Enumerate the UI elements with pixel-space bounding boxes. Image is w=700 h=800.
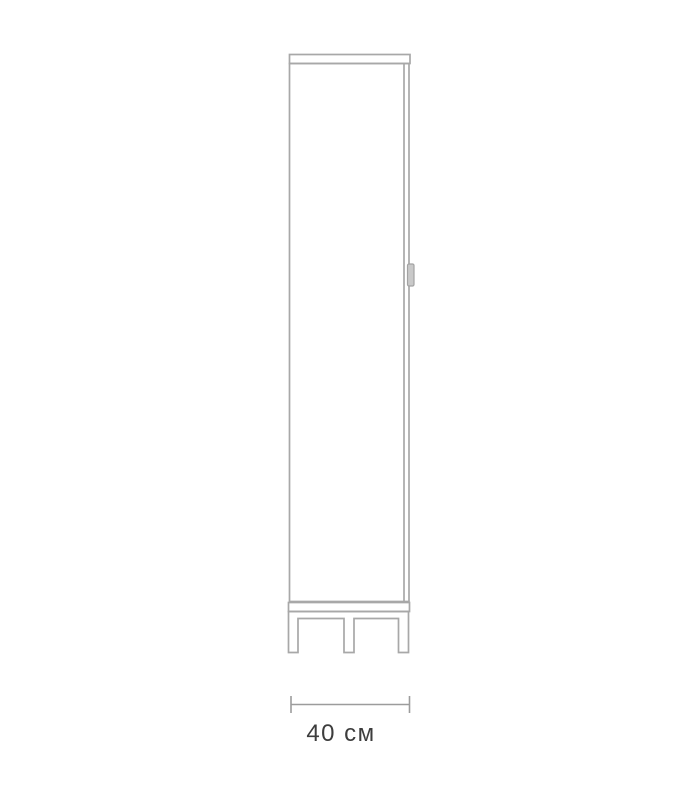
cabinet-top-panel bbox=[290, 55, 411, 64]
cabinet-body bbox=[290, 64, 410, 602]
drawing-canvas: 40 см bbox=[0, 0, 700, 800]
cabinet-drawing bbox=[0, 0, 700, 800]
base-rail bbox=[289, 603, 410, 612]
dimension-line bbox=[291, 696, 410, 713]
dimension-label: 40 см bbox=[306, 720, 375, 748]
door-handle bbox=[408, 264, 415, 286]
leg-frame bbox=[289, 612, 409, 653]
